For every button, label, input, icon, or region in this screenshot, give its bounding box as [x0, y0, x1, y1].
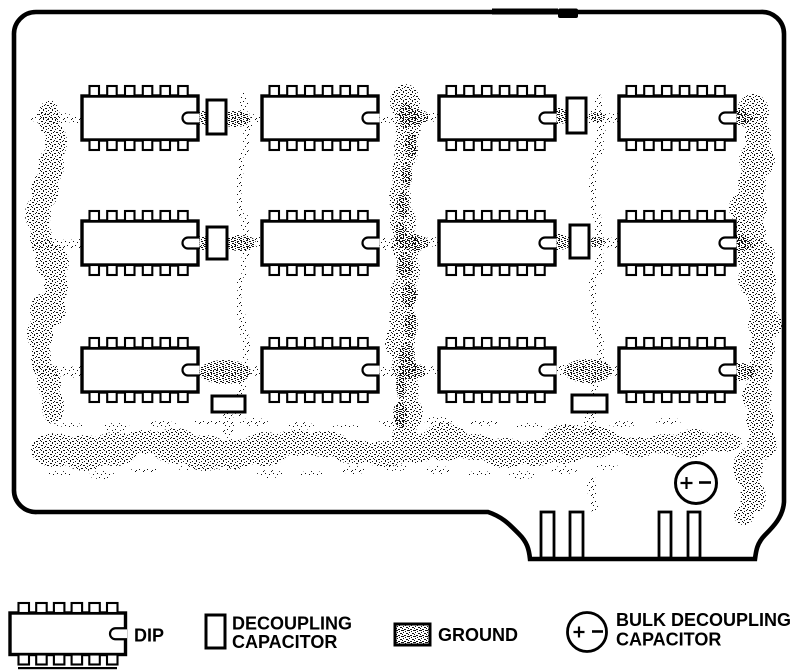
svg-text:GROUND: GROUND: [438, 625, 518, 645]
svg-text:BULK DECOUPLING: BULK DECOUPLING: [616, 610, 791, 630]
svg-text:DECOUPLING: DECOUPLING: [232, 614, 352, 634]
svg-text:DIP: DIP: [134, 626, 164, 646]
svg-text:CAPACITOR: CAPACITOR: [232, 632, 337, 652]
svg-text:CAPACITOR: CAPACITOR: [616, 630, 721, 650]
